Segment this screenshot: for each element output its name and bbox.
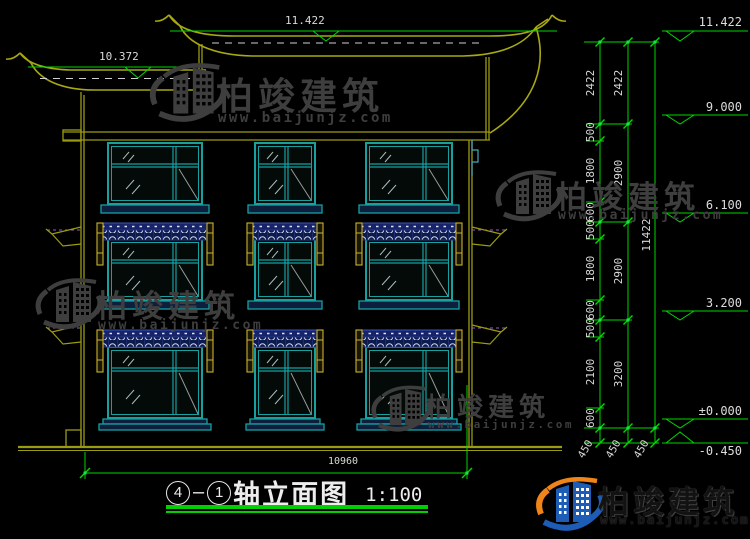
right-wall-step — [472, 140, 478, 176]
axis-bubble-start: 4 — [166, 481, 190, 505]
dim-1800-b: 1800 — [585, 246, 597, 292]
level-11422: 11.422 — [682, 15, 742, 29]
brand-logo-icon — [539, 479, 602, 528]
roof-left-elevation-label: 10.372 — [99, 50, 139, 63]
roof-main-elevation-label: 11.422 — [285, 14, 325, 27]
total-width-label: 10960 — [318, 456, 368, 467]
watermark-url-midleft: www.baijunjz.com — [98, 318, 263, 333]
level-9000: 9.000 — [682, 100, 742, 114]
dim-500-c: 500 — [585, 305, 597, 351]
dim-2100-a: 2100 — [585, 349, 597, 395]
watermark-url-top: www.baijunjz.com — [218, 110, 393, 126]
dim-2422-a: 2422 — [585, 60, 597, 106]
watermark-url-bottom: www.baijunjz.com — [428, 418, 574, 431]
level-0000: ±0.000 — [682, 404, 742, 418]
cad-elevation-screenshot: 11.422 10.372 10960 2422 500 1800 600 50… — [0, 0, 750, 539]
dim-2422-b: 2422 — [613, 60, 625, 106]
title-underline-thin — [166, 511, 428, 513]
axis-dash: – — [193, 481, 204, 504]
level-m0450: -0.450 — [682, 444, 742, 458]
axis-bubble-end: 1 — [207, 481, 231, 505]
watermark-url-midright: www.baijunjz.com — [558, 208, 723, 223]
title-underline-thick — [166, 505, 428, 509]
brand-logo-url: www.baijunjz.com — [600, 513, 749, 528]
drawing-scale: 1:100 — [365, 480, 422, 506]
dim-2900-b: 2900 — [613, 248, 625, 294]
dim-3200-a: 3200 — [613, 351, 625, 397]
level-3200: 3.200 — [682, 296, 742, 310]
